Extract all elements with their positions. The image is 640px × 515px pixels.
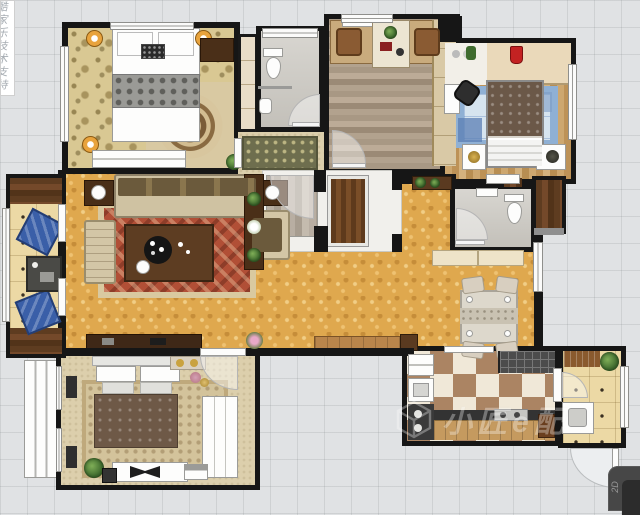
bedroom-tl-door-gap bbox=[234, 138, 242, 168]
sink-basin bbox=[413, 383, 429, 397]
burner bbox=[500, 412, 506, 418]
bedroom-bl-window bbox=[56, 366, 62, 410]
counter-knob bbox=[414, 424, 422, 432]
desk-chair bbox=[336, 28, 362, 56]
washer-lid bbox=[568, 408, 587, 427]
view-mode-label: 2D bbox=[610, 481, 620, 493]
door-mat bbox=[564, 351, 600, 367]
white-lily bbox=[247, 220, 261, 234]
plant bbox=[84, 458, 104, 478]
brown-cabinet bbox=[538, 414, 555, 438]
bay-window bbox=[24, 360, 58, 478]
bathroom-right-door-leaf bbox=[455, 240, 485, 245]
bed-blanket bbox=[488, 82, 542, 138]
toilet-tank bbox=[504, 194, 524, 202]
cabinet-dark bbox=[66, 376, 77, 398]
shower-partition bbox=[258, 86, 292, 89]
chaise-lounge bbox=[84, 220, 116, 284]
fridge bbox=[408, 354, 434, 376]
study-top-window bbox=[341, 14, 393, 23]
pillow-small bbox=[102, 382, 134, 394]
bed-pillows bbox=[488, 140, 542, 166]
entry-door bbox=[328, 176, 368, 246]
headboard bbox=[92, 356, 180, 366]
desk-plant bbox=[384, 26, 397, 39]
dining-chair bbox=[495, 276, 519, 295]
av-device bbox=[150, 338, 166, 345]
drying-counter bbox=[498, 351, 555, 373]
red-vase bbox=[510, 46, 523, 64]
closet-strip bbox=[238, 34, 258, 132]
pillow-small bbox=[140, 382, 172, 394]
sideboard bbox=[432, 250, 524, 266]
plant bbox=[247, 248, 261, 262]
left-watermark: 酷家乐技术支持 bbox=[0, 0, 15, 96]
balcony-plant bbox=[600, 352, 619, 371]
foyer-wall bbox=[314, 226, 328, 252]
place-setting bbox=[504, 296, 511, 303]
black-tray bbox=[144, 236, 172, 264]
flower-pot bbox=[246, 332, 263, 349]
cloakroom-dark bbox=[532, 176, 566, 234]
table-runner bbox=[460, 308, 518, 324]
gold-ornament bbox=[468, 151, 480, 163]
cabinet-dark bbox=[66, 446, 77, 468]
corner-lamp bbox=[86, 30, 103, 47]
av-device bbox=[102, 338, 114, 345]
lower-counter bbox=[408, 404, 434, 440]
gray-damask-bed-runner bbox=[112, 74, 200, 108]
plate bbox=[136, 260, 150, 274]
tray-dot bbox=[159, 247, 164, 252]
decor-dot bbox=[186, 250, 190, 254]
toilet-tank bbox=[263, 48, 283, 57]
foyer-wall bbox=[314, 170, 326, 192]
vanity-bowl bbox=[452, 50, 460, 58]
stool-dark bbox=[102, 468, 117, 483]
plant bbox=[430, 178, 440, 188]
place-setting bbox=[466, 296, 473, 303]
green-jar bbox=[466, 46, 476, 60]
dark-plant bbox=[546, 150, 559, 163]
tray-dot bbox=[150, 241, 155, 246]
balcony-door-opening bbox=[58, 278, 66, 316]
dining-right-window bbox=[533, 242, 543, 292]
balcony-right-window bbox=[620, 366, 629, 428]
desk-accessory bbox=[380, 42, 392, 51]
teacup bbox=[32, 262, 38, 268]
bed-blanket bbox=[94, 394, 178, 448]
wood-deck bbox=[10, 178, 62, 204]
bathroom-top-window bbox=[262, 28, 318, 38]
washbasin bbox=[259, 98, 272, 114]
bedroom-tl-top-window bbox=[110, 22, 194, 30]
washbasin bbox=[476, 188, 498, 197]
plant bbox=[415, 177, 426, 188]
dining-chair bbox=[461, 276, 485, 295]
floor-plan[interactable]: 酷家乐技术支持 小匠e配 2D bbox=[0, 0, 640, 503]
media-device bbox=[184, 464, 208, 480]
desk-accessory-dark bbox=[396, 48, 404, 56]
wall-cap bbox=[534, 228, 564, 235]
view-mode-widget[interactable]: 2D bbox=[608, 466, 640, 511]
bathroom-door-leaf bbox=[292, 122, 320, 127]
bedroom-tl-left-window bbox=[60, 46, 69, 142]
place-setting bbox=[466, 330, 473, 337]
gold-cushion bbox=[190, 359, 198, 367]
bedroom-tr-right-window bbox=[568, 64, 577, 140]
bedroom-bl-door-gap bbox=[200, 348, 246, 356]
tray-dot bbox=[151, 251, 155, 255]
place-setting bbox=[504, 330, 511, 337]
balcony-door-opening bbox=[58, 204, 66, 242]
table-lamp bbox=[91, 185, 106, 200]
balcony-left-window bbox=[2, 208, 10, 322]
balcony-door-gap bbox=[553, 368, 562, 402]
floral-runner-rug bbox=[242, 136, 318, 170]
table-lamp bbox=[265, 185, 280, 200]
kitchen-door-gap bbox=[444, 346, 494, 353]
dark-cabinet bbox=[200, 38, 234, 62]
burner bbox=[514, 412, 520, 418]
gold-cushion bbox=[176, 359, 184, 367]
decor-dot bbox=[178, 242, 183, 247]
counter-knob bbox=[414, 410, 422, 418]
gold-decor bbox=[200, 378, 209, 387]
wood-counter bbox=[434, 420, 555, 440]
rug-patch bbox=[458, 118, 482, 142]
pillow bbox=[96, 366, 136, 382]
bedroom-bl-window bbox=[56, 428, 62, 472]
study-door-leaf bbox=[332, 163, 366, 168]
foyer-wall bbox=[392, 234, 402, 252]
dark-accent-pillow bbox=[141, 44, 165, 59]
foyer-wall bbox=[392, 170, 402, 190]
wall-jog bbox=[438, 16, 462, 42]
desk-chair bbox=[414, 28, 440, 56]
sofa-back-cushions bbox=[118, 178, 256, 196]
left-watermark-text: 酷家乐技术支持 bbox=[0, 1, 7, 92]
plant bbox=[247, 192, 261, 206]
bedroom-tr-door-gap bbox=[486, 174, 520, 184]
tea-tray bbox=[40, 272, 54, 282]
view-mode-inner bbox=[622, 480, 640, 515]
low-dresser bbox=[92, 150, 186, 168]
floor-plan-canvas: { "watermarks": { "left_vertical": "酷家乐技… bbox=[0, 0, 640, 503]
